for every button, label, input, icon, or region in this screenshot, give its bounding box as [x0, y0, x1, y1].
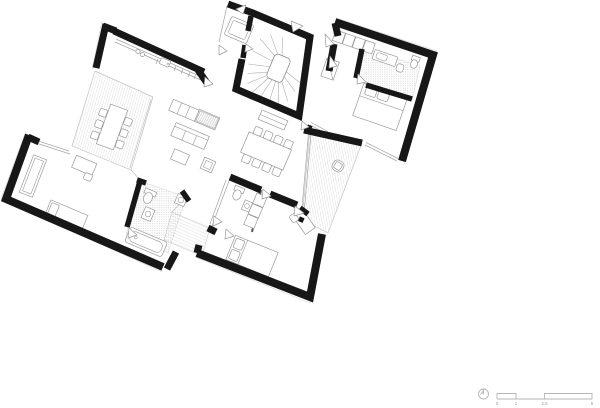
scale-label-3: 5	[591, 401, 594, 406]
ottoman	[170, 149, 189, 165]
cooktop-burner	[136, 49, 140, 53]
north-arrow-icon	[479, 389, 489, 399]
floor-plan	[1, 4, 437, 303]
scale-label-2: 2.5	[541, 401, 548, 406]
floor-plan-canvas: 0 1 2.5 5	[0, 0, 600, 408]
dining-area	[237, 125, 294, 178]
door-leaf	[245, 44, 253, 52]
bedroom-south	[226, 185, 315, 276]
scale-label-0: 0	[496, 401, 499, 406]
door-leaf	[225, 229, 234, 239]
sofa	[171, 123, 210, 150]
desk-west	[72, 155, 97, 176]
side-table	[200, 157, 216, 173]
door-leaf	[204, 77, 213, 87]
toilet	[230, 185, 245, 202]
cooktop-burner	[140, 52, 144, 56]
door-leaf	[219, 45, 227, 55]
stair-core	[266, 53, 292, 84]
scale-label-1: 1	[515, 401, 518, 406]
door-leaf	[213, 216, 222, 226]
scale-bar: 0 1 2.5 5	[496, 394, 594, 407]
floor-plan-page: 0 1 2.5 5	[0, 0, 600, 408]
